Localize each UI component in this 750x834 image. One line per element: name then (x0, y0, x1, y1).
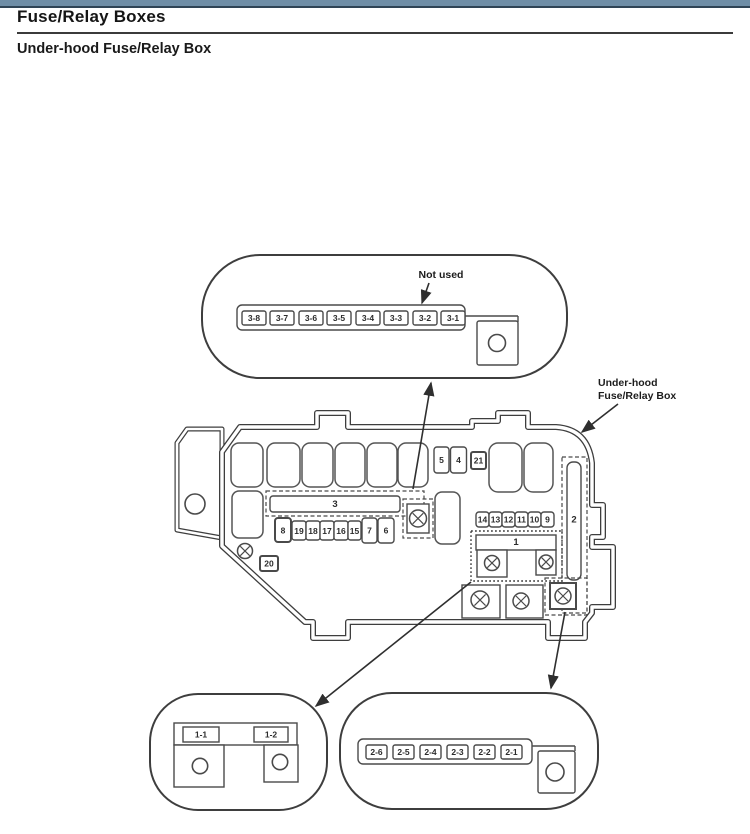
block1-detail-hole-icon (192, 758, 207, 773)
relay-right-b (524, 443, 553, 492)
fuse-2-6-label: 2-6 (370, 747, 383, 757)
fuse-7-label: 7 (367, 526, 372, 536)
fuse-3-2-label: 3-2 (419, 313, 432, 323)
fuse-row-left: 8 19 18 17 16 15 7 6 (275, 518, 394, 543)
fuse-1-2-label: 1-2 (265, 730, 278, 740)
mounting-ear (177, 429, 222, 538)
fuse-3-8-label: 3-8 (248, 313, 261, 323)
fuse-2-3-label: 2-3 (451, 747, 464, 757)
strip2-mount-hole-icon (546, 763, 564, 781)
fuse-10-label: 10 (530, 515, 540, 525)
bolt-icon (471, 591, 489, 609)
relay-right-a (489, 443, 522, 492)
relay-mid (435, 492, 460, 544)
box-label-line1: Under-hood (598, 377, 658, 389)
fuse-11-label: 11 (517, 515, 526, 525)
relay-row-top (231, 443, 428, 487)
fuse-18-label: 18 (308, 526, 318, 536)
fuse-9-label: 9 (545, 515, 550, 525)
box-label-line2: Fuse/Relay Box (598, 390, 676, 402)
fuse-5-label: 5 (439, 455, 444, 465)
block1-detail-hole-icon (272, 754, 287, 769)
fuse-8-label: 8 (281, 526, 286, 536)
fuse-2-2-label: 2-2 (478, 747, 491, 757)
fuse-6-label: 6 (384, 526, 389, 536)
fuse-4-label: 4 (456, 455, 461, 465)
fuse-3-5-label: 3-5 (333, 313, 346, 323)
fuse-3-7-label: 3-7 (276, 313, 289, 323)
bolt-icon (555, 588, 571, 604)
box-label-arrow-icon (582, 404, 618, 432)
fuse-3-3-label: 3-3 (390, 313, 403, 323)
fuse-2-1-label: 2-1 (505, 747, 518, 757)
bolt-icon (410, 510, 427, 527)
strip2-number: 2 (571, 515, 576, 526)
fuse-12-label: 12 (504, 515, 514, 525)
fuse-2-5-label: 2-5 (397, 747, 410, 757)
fuse-15-label: 15 (350, 526, 360, 536)
fuse-1-1-label: 1-1 (195, 730, 208, 740)
not-used-label: Not used (419, 269, 464, 281)
fuse-box-diagram: 3-8 3-7 3-6 3-5 3-4 3-3 3-2 3-1 Not used… (0, 0, 750, 834)
block1-number: 1 (513, 537, 519, 548)
fuse-3-6-label: 3-6 (305, 313, 318, 323)
relay-left-second (232, 491, 263, 538)
bolt-icon (238, 544, 253, 559)
fuse-14-label: 14 (478, 515, 488, 525)
fuse-21-label: 21 (474, 456, 484, 466)
mounting-ear-hole-icon (185, 494, 205, 514)
fuse-3-1-label: 3-1 (447, 313, 460, 323)
fuse-20-label: 20 (264, 559, 274, 569)
fuse-16-label: 16 (336, 526, 346, 536)
fuse-row-mid: 14 13 12 11 10 9 (476, 512, 554, 527)
strip3-number: 3 (332, 499, 337, 510)
bolt-icon (485, 556, 500, 571)
strip3-mount-hole-icon (489, 335, 506, 352)
fuse-13-label: 13 (491, 515, 501, 525)
bolt-icon (539, 555, 553, 569)
fuse-2-4-label: 2-4 (424, 747, 437, 757)
fuse-3-4-label: 3-4 (362, 313, 375, 323)
fuse-19-label: 19 (294, 526, 304, 536)
bolt-icon (513, 593, 529, 609)
fuse-17-label: 17 (322, 526, 332, 536)
